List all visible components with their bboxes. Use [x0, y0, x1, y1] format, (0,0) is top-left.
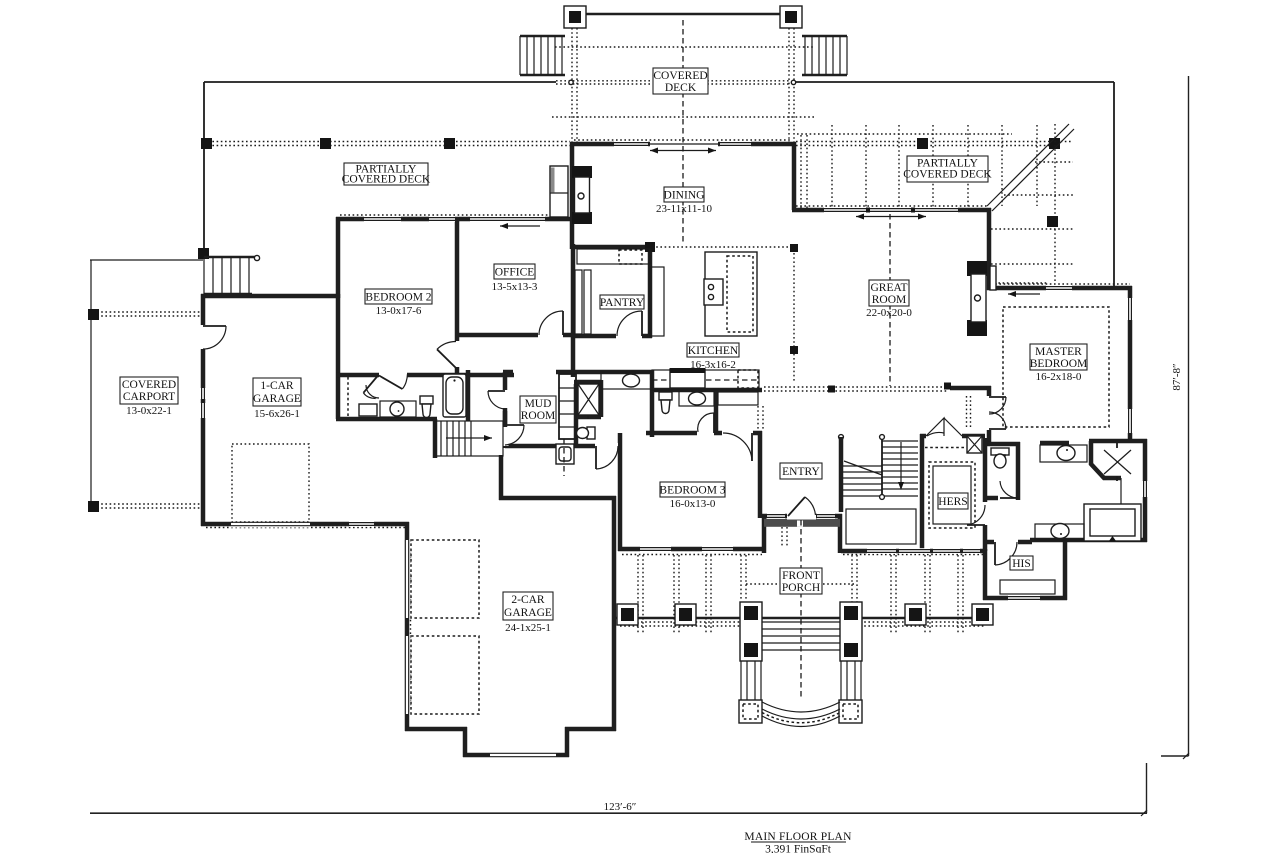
svg-text:ROOM: ROOM [872, 294, 907, 306]
svg-text:COVERED DECK: COVERED DECK [342, 174, 431, 186]
svg-text:KITCHEN: KITCHEN [688, 345, 739, 357]
svg-text:3,391 FinSqFt: 3,391 FinSqFt [765, 844, 832, 853]
svg-text:87′-8″: 87′-8″ [1171, 363, 1183, 390]
svg-text:DECK: DECK [665, 82, 697, 94]
svg-text:24-1x25-1: 24-1x25-1 [505, 622, 551, 634]
svg-text:13-0x22-1: 13-0x22-1 [126, 405, 172, 417]
svg-text:CARPORT: CARPORT [123, 391, 175, 403]
svg-text:16-3x16-2: 16-3x16-2 [690, 359, 736, 371]
svg-text:ROOM: ROOM [521, 410, 556, 422]
svg-text:1-CAR: 1-CAR [260, 380, 294, 392]
svg-text:GREAT: GREAT [870, 282, 907, 294]
svg-text:23-11x11-10: 23-11x11-10 [656, 203, 713, 215]
svg-text:16-0x13-0: 16-0x13-0 [670, 498, 716, 510]
svg-text:ENTRY: ENTRY [782, 466, 820, 478]
svg-text:OFFICE: OFFICE [495, 267, 535, 279]
svg-text:FRONT: FRONT [782, 570, 820, 582]
svg-text:13-0x17-6: 13-0x17-6 [376, 305, 422, 317]
svg-text:PANTRY: PANTRY [600, 297, 645, 309]
svg-text:GARAGE: GARAGE [504, 607, 552, 619]
svg-text:123′-6″: 123′-6″ [604, 801, 637, 813]
svg-text:15-6x26-1: 15-6x26-1 [254, 408, 300, 420]
svg-text:BEDROOM 2: BEDROOM 2 [365, 292, 431, 304]
svg-text:2-CAR: 2-CAR [511, 594, 545, 606]
svg-text:MASTER: MASTER [1035, 346, 1082, 358]
svg-text:COVERED: COVERED [122, 379, 176, 391]
svg-text:HERS: HERS [938, 496, 967, 508]
svg-text:COVERED DECK: COVERED DECK [903, 169, 992, 181]
svg-text:GARAGE: GARAGE [253, 393, 301, 405]
svg-text:13-5x13-3: 13-5x13-3 [492, 281, 538, 293]
svg-text:HIS: HIS [1012, 558, 1031, 570]
svg-text:BEDROOM: BEDROOM [1030, 358, 1088, 370]
svg-text:BEDROOM 3: BEDROOM 3 [659, 485, 725, 497]
svg-text:16-2x18-0: 16-2x18-0 [1036, 371, 1082, 383]
svg-text:MUD: MUD [525, 398, 552, 410]
svg-text:DINING: DINING [664, 190, 705, 202]
svg-text:PORCH: PORCH [782, 582, 820, 594]
svg-text:COVERED: COVERED [653, 70, 707, 82]
svg-text:MAIN FLOOR PLAN: MAIN FLOOR PLAN [744, 831, 852, 843]
svg-text:22-0x20-0: 22-0x20-0 [866, 307, 912, 319]
